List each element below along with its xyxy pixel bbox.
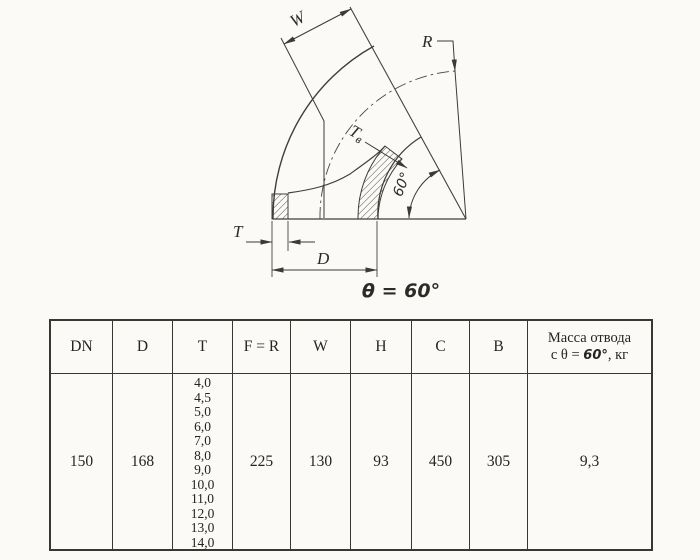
header-cell-dn: DN xyxy=(51,321,113,373)
drawing-caption: θ = 60° xyxy=(362,280,440,302)
cell-b-value: 305 xyxy=(470,374,528,549)
header-cell-f-r: F = R xyxy=(233,321,291,373)
dimension-w-label: W xyxy=(287,7,310,31)
mass-header-line1: Масса отвода xyxy=(548,330,631,347)
table-data-row: 150 168 4,0 4,5 5,0 6,0 7,0 8,0 9,0 10,0… xyxy=(51,374,651,549)
header-cell-h: H xyxy=(351,321,412,373)
cell-mass-value: 9,3 xyxy=(528,374,651,549)
header-cell-w: W xyxy=(291,321,351,373)
cell-d-value: 168 xyxy=(113,374,173,549)
t-value: 14,0 xyxy=(191,536,215,551)
t-value: 12,0 xyxy=(191,507,215,522)
t-value: 13,0 xyxy=(191,521,215,536)
header-cell-d: D xyxy=(113,321,173,373)
dimension-r-label: R xyxy=(421,32,433,51)
cell-dn-value: 150 xyxy=(51,374,113,549)
t-value: 7,0 xyxy=(194,434,211,449)
t-value: 5,0 xyxy=(194,405,211,420)
cell-f-r-value: 225 xyxy=(233,374,291,549)
dimension-t-label: T xyxy=(233,222,244,241)
elbow-drawing: W R Tв 60° T D θ = 60° xyxy=(0,0,700,310)
dimension-table: DN D T F = R W H C B Масса отвода с θ = … xyxy=(49,319,653,551)
header-cell-c: C xyxy=(412,321,470,373)
t-value: 11,0 xyxy=(191,492,214,507)
t-value: 8,0 xyxy=(194,449,211,464)
header-cell-b: B xyxy=(470,321,528,373)
header-cell-t: T xyxy=(173,321,233,373)
t-value: 4,5 xyxy=(194,391,211,406)
t-value: 6,0 xyxy=(194,420,211,435)
outer-wall-section-hatch xyxy=(272,194,288,219)
cell-c-value: 450 xyxy=(412,374,470,549)
bend-centerline-arc xyxy=(320,71,455,219)
dimension-r-leader xyxy=(437,41,455,71)
dimension-d-label: D xyxy=(316,249,330,268)
dimension-r-radial-ray xyxy=(455,71,466,219)
cell-h-value: 93 xyxy=(351,374,412,549)
dimension-tv-label: Tв xyxy=(345,121,368,147)
table-header-row: DN D T F = R W H C B Масса отвода с θ = … xyxy=(51,321,651,374)
header-cell-mass: Масса отвода с θ = 60°, кг xyxy=(528,321,651,373)
cell-t-values: 4,0 4,5 5,0 6,0 7,0 8,0 9,0 10,0 11,0 12… xyxy=(173,374,233,549)
t-value: 9,0 xyxy=(194,463,211,478)
angle-label: 60° xyxy=(390,170,414,199)
scanned-page: W R Tв 60° T D θ = 60° DN D T F = R W H xyxy=(0,0,700,560)
mass-header-line2: с θ = 60°, кг xyxy=(551,347,628,364)
t-value: 4,0 xyxy=(194,376,211,391)
cell-w-value: 130 xyxy=(291,374,351,549)
t-value: 10,0 xyxy=(191,478,215,493)
